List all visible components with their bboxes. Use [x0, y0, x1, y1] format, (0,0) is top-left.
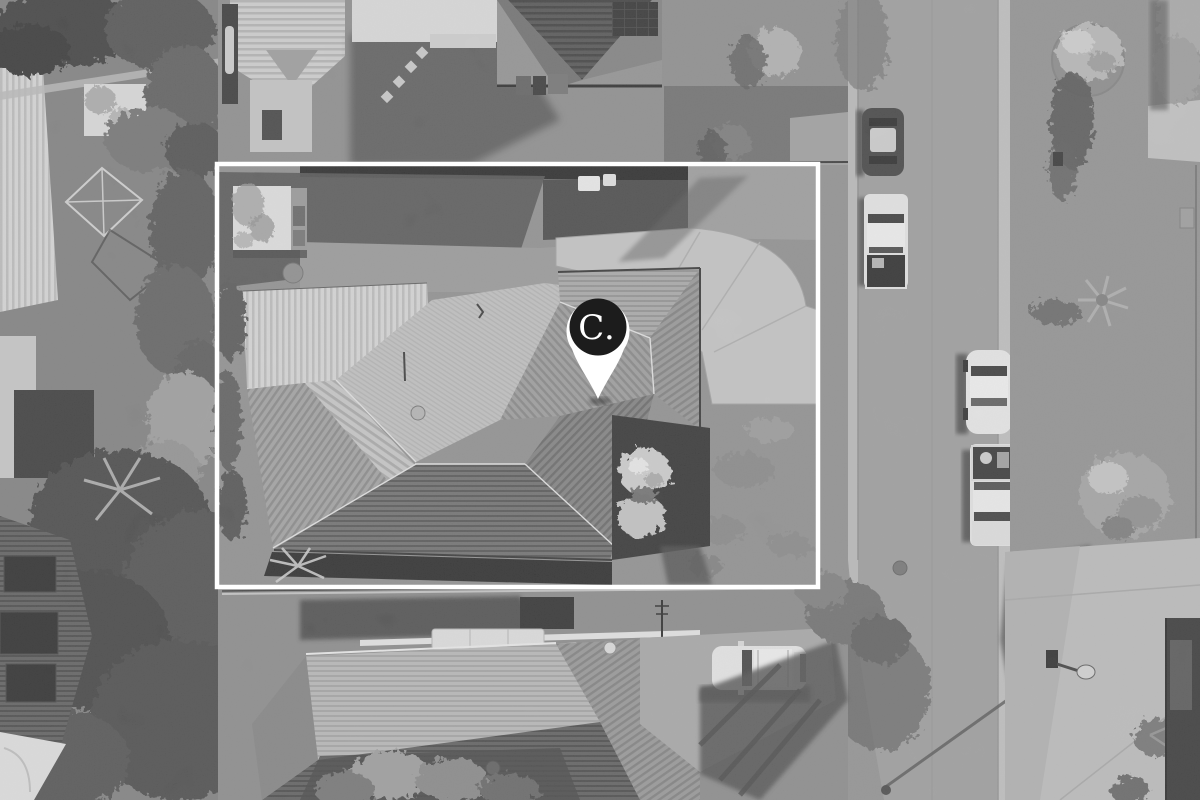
aerial-photo: C.: [0, 0, 1200, 800]
pin-label: C.: [578, 308, 616, 348]
